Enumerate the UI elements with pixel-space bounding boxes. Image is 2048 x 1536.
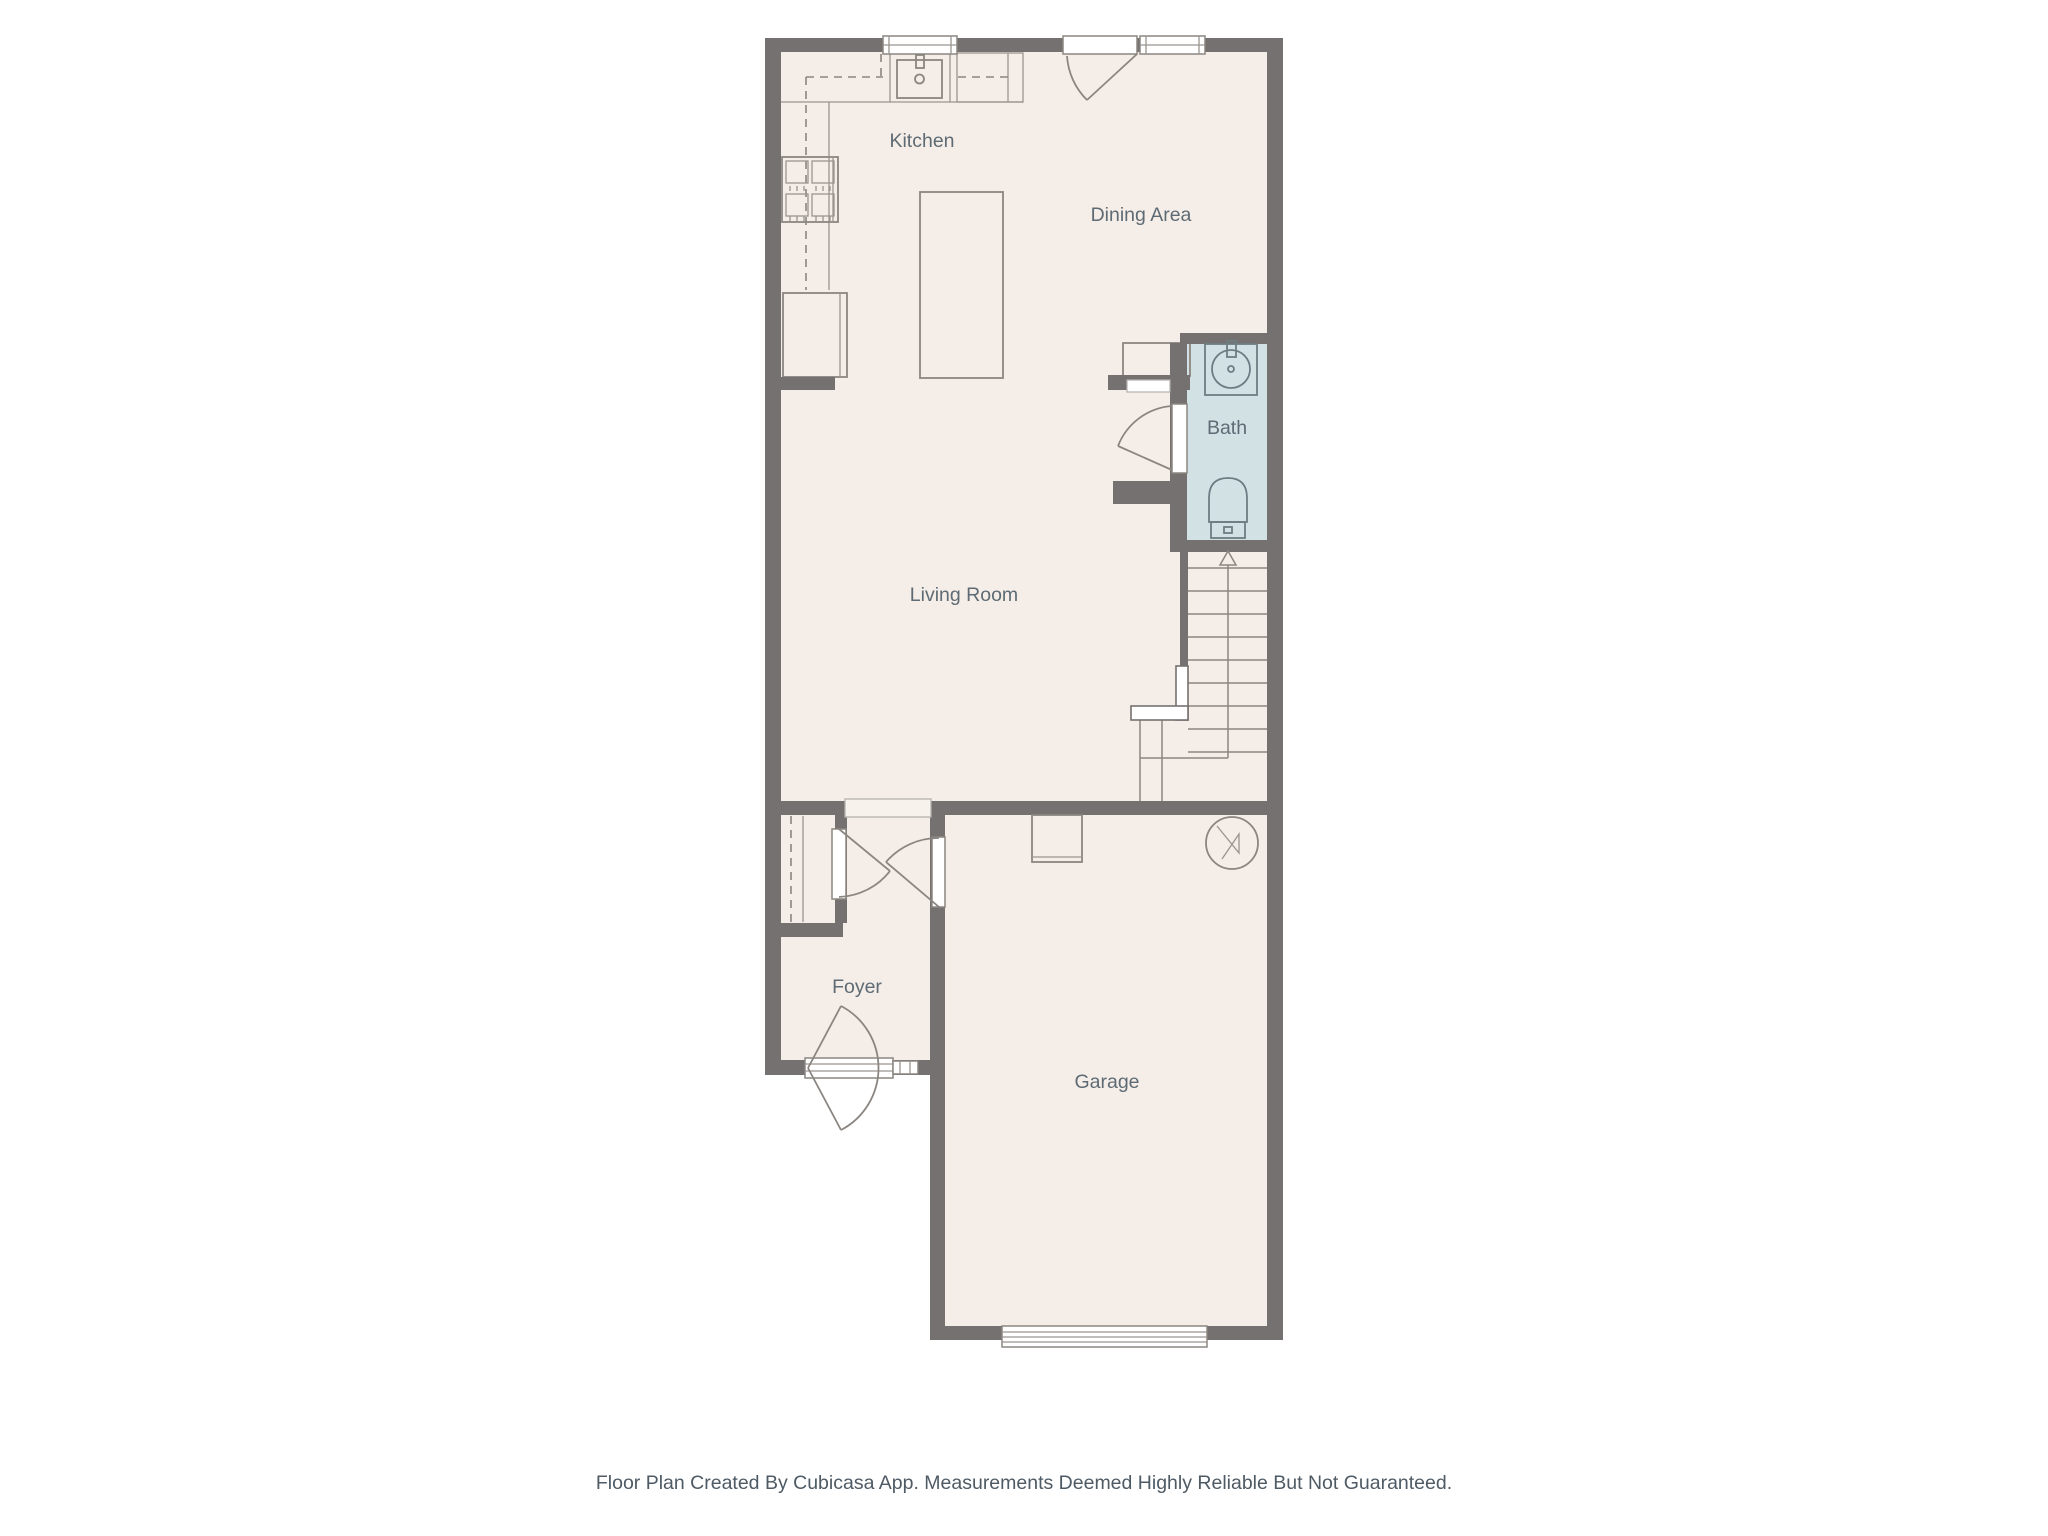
floor-areas <box>771 44 1277 1334</box>
footer-disclaimer: Floor Plan Created By Cubicasa App. Meas… <box>0 1472 2048 1495</box>
wall-niche <box>1127 380 1170 392</box>
wall-closet-bottom <box>781 923 843 937</box>
wall-left <box>765 38 781 1075</box>
living-room-label: Living Room <box>910 584 1018 606</box>
wall-stairs-west <box>1180 552 1188 668</box>
wall-right <box>1267 38 1283 1340</box>
wall-bath-top <box>1180 333 1283 344</box>
stair-half-wall-horizontal <box>1131 706 1188 720</box>
dining-area-label: Dining Area <box>1091 204 1192 226</box>
front-door-sidelite <box>893 1061 918 1074</box>
wall-living-garage-divider <box>765 801 1283 815</box>
kitchen-label: Kitchen <box>889 130 954 152</box>
bath-label: Bath <box>1207 417 1247 439</box>
wall-bath-stub <box>1113 481 1170 504</box>
foyer-label: Foyer <box>832 976 882 998</box>
garage-vehicle-door <box>1002 1326 1207 1347</box>
floor-plan-drawing: Kitchen Dining Area Bath Living Room Foy… <box>0 0 2048 1536</box>
garage-floor-area <box>936 806 1277 1334</box>
wall-kitchen-stub <box>765 377 835 390</box>
garage-label: Garage <box>1074 1071 1139 1093</box>
floor-plan-page: Kitchen Dining Area Bath Living Room Foy… <box>0 0 2048 1536</box>
dining-window <box>1140 36 1205 54</box>
wall-bath-bottom <box>1170 540 1283 552</box>
living-foyer-opening <box>845 799 931 817</box>
kitchen-window <box>883 36 957 54</box>
